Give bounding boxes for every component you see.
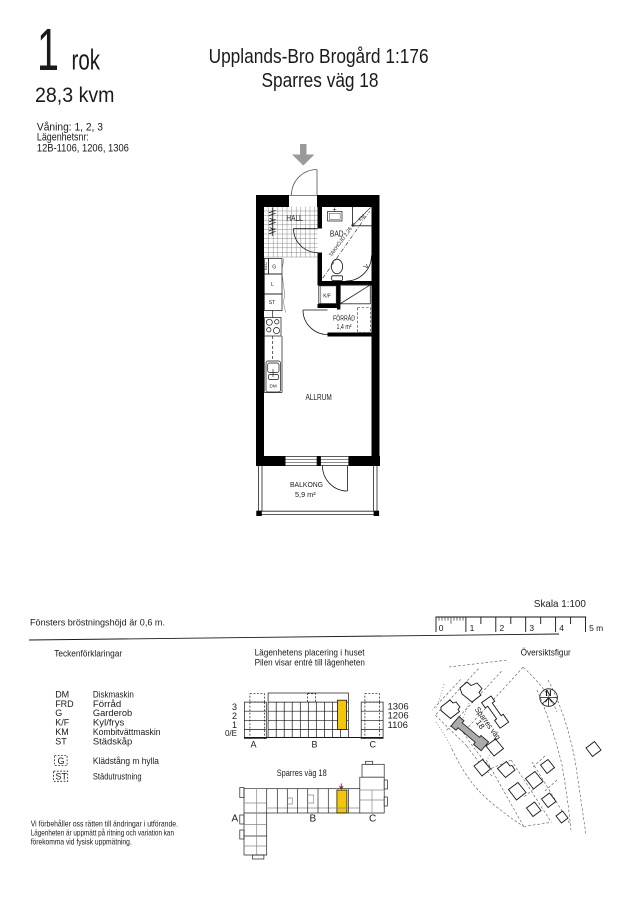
svg-text:Diskmaskin: Diskmaskin [93,689,134,699]
svg-text:Lägenhetens placering i huset: Lägenhetens placering i huset [255,648,365,658]
svg-text:Städskåp: Städskåp [93,736,132,746]
svg-text:ST: ST [55,736,67,746]
svg-text:1106: 1106 [388,720,408,731]
svg-text:2: 2 [500,623,505,633]
svg-text:L: L [271,282,274,288]
svg-text:G: G [58,756,65,766]
svg-text:5,9 m²: 5,9 m² [295,492,316,499]
svg-text:Fönsters bröstningshöjd är 0,6: Fönsters bröstningshöjd är 0,6 m. [30,618,165,628]
svg-text:förekomma vid fysisk uppmätnin: förekomma vid fysisk uppmätning. [31,838,132,847]
svg-text:Sparres väg 18: Sparres väg 18 [262,70,379,92]
svg-text:ST: ST [56,771,68,781]
svg-text:Upplands-Bro Brogård 1:176: Upplands-Bro Brogård 1:176 [209,46,429,68]
svg-text:Pilen visar entré till lägenhe: Pilen visar entré till lägenheten [255,657,365,667]
svg-text:ELC: ELC [263,262,268,270]
svg-text:A: A [232,814,239,825]
svg-text:FÖRRÅD: FÖRRÅD [333,314,355,323]
svg-text:3: 3 [529,623,534,633]
svg-text:12B-1106, 1206, 1306: 12B-1106, 1206, 1306 [37,142,129,154]
svg-text:28,3 kvm: 28,3 kvm [35,83,115,107]
svg-text:Teckenförklaringar: Teckenförklaringar [54,648,122,658]
svg-text:1,4 m²: 1,4 m² [337,324,353,331]
svg-text:0: 0 [439,623,444,633]
svg-text:A: A [251,740,257,750]
svg-text:B: B [312,740,318,750]
svg-text:rok: rok [72,45,101,77]
svg-text:Städutrustning: Städutrustning [93,771,142,781]
svg-text:Översiktsfigur: Översiktsfigur [521,648,571,658]
svg-text:5 m: 5 m [589,623,603,633]
svg-text:Klädstång m hylla: Klädstång m hylla [93,756,159,766]
svg-text:0/E: 0/E [225,729,237,738]
svg-text:Vi förbehåller oss rätten till: Vi förbehåller oss rätten till ändringar… [31,818,178,828]
svg-text:DM: DM [270,383,277,388]
svg-text:ALLRUM: ALLRUM [306,392,332,402]
svg-text:Sparres väg 18: Sparres väg 18 [277,768,327,779]
svg-text:BALKONG: BALKONG [290,482,323,489]
svg-text:1: 1 [37,17,59,83]
svg-text:Skala 1:100: Skala 1:100 [534,598,586,610]
svg-text:Lägenheten är uppmätt på ritni: Lägenheten är uppmätt på ritning och var… [31,828,175,838]
svg-text:N: N [545,688,551,698]
svg-text:HALL: HALL [286,213,303,223]
svg-text:G: G [272,265,276,271]
svg-text:C: C [369,814,376,825]
svg-text:K/F: K/F [323,293,331,299]
svg-text:ST: ST [269,300,275,306]
svg-text:DM: DM [55,689,69,699]
svg-text:B: B [310,814,317,825]
svg-text:1: 1 [470,623,475,633]
svg-text:4: 4 [559,623,564,633]
svg-text:C: C [370,740,377,750]
